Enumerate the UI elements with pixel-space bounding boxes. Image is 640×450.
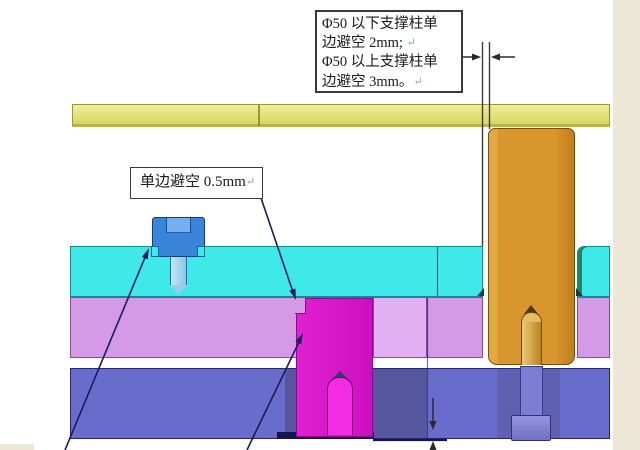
- note-line: Φ50 以上支撑柱单: [322, 53, 456, 72]
- core-plate-right: [577, 297, 610, 358]
- page-border-bottom-left: [0, 444, 34, 450]
- mold-cross-section-diagram: Φ50 以下支撑柱单 边避空 2mm; ↵ Φ50 以上支撑柱单 边避空 3mm…: [0, 0, 640, 450]
- insert-bolt-shaft: [327, 390, 353, 435]
- dim-gap-left-arrow: [472, 54, 481, 61]
- dim-bottom-up-arrow: [430, 441, 437, 450]
- stop-screw-counterbore: [166, 218, 191, 233]
- page-border-right: [613, 0, 640, 450]
- cavity-plate-left: [70, 246, 483, 297]
- cavity-plate-right: [577, 246, 610, 297]
- screw-clearance-notch-left: [151, 246, 159, 257]
- stop-screw-shaft: [170, 257, 187, 285]
- insert-clearance-step: [295, 297, 306, 314]
- pillar-bolt-socket-head: [511, 415, 551, 441]
- core-plate-mid: [427, 297, 483, 358]
- support-plate-recess-right: [373, 369, 427, 438]
- top-clamp-plate: [72, 104, 610, 127]
- note-box-side-clearance: 单边避空 0.5mm↵: [130, 167, 263, 199]
- pillar-bolt-shaft: [521, 322, 542, 365]
- pillar-bolt-lower-shaft: [520, 366, 543, 416]
- note-box-pillar-clearance: Φ50 以下支撑柱单 边避空 2mm; ↵ Φ50 以上支撑柱单 边避空 3mm…: [315, 10, 463, 93]
- note-line: 边避空 3mm。↵: [322, 73, 456, 92]
- core-plate-clearance-zone: [373, 297, 427, 358]
- screw-clearance-notch-right: [197, 246, 205, 257]
- note-line: Φ50 以下支撑柱单: [322, 15, 456, 34]
- dim-gap-right-arrow: [491, 54, 500, 61]
- note-line: 边避空 2mm; ↵: [322, 34, 456, 53]
